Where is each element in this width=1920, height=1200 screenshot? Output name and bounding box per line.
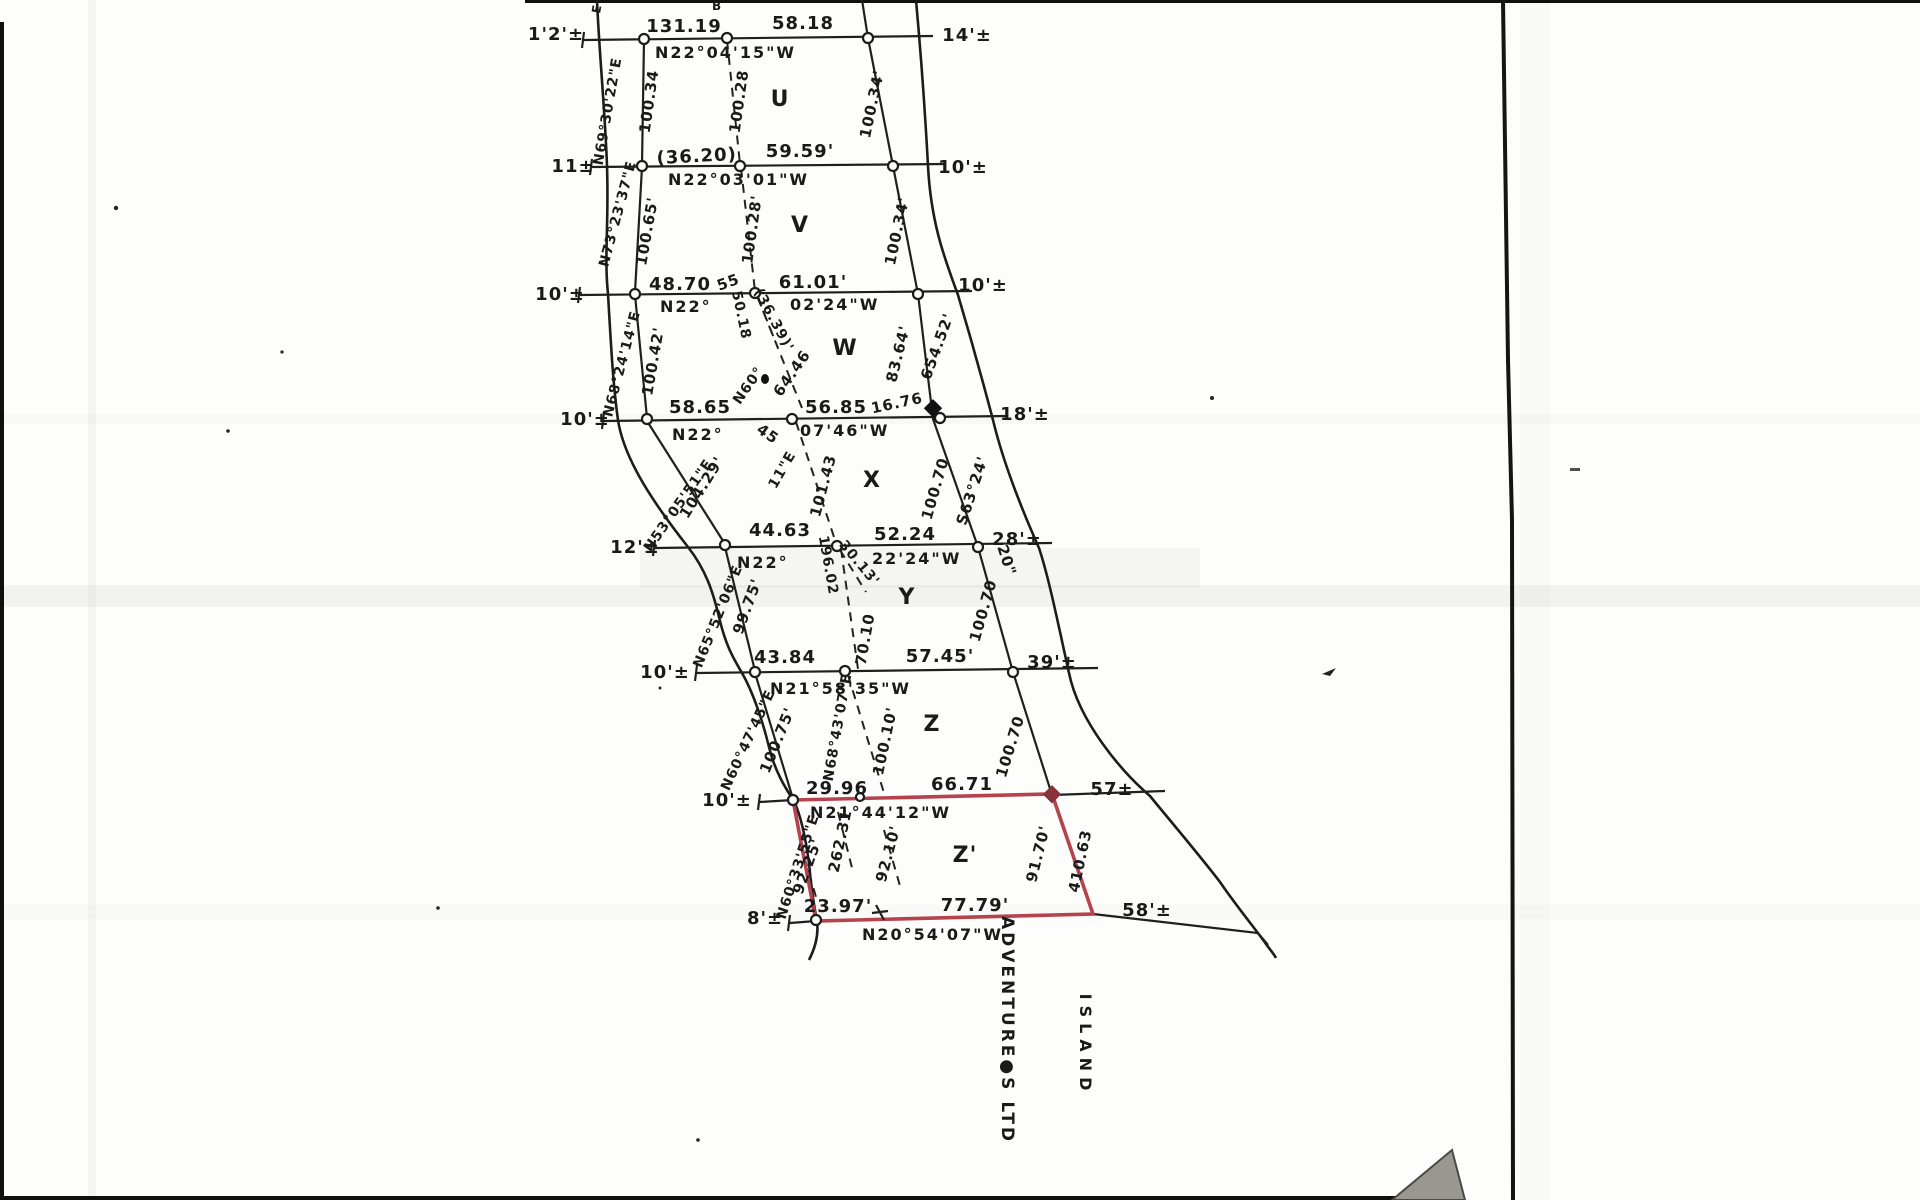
row-6-right-tick: 57± bbox=[1090, 779, 1133, 800]
lot-u-shore-bearing: N69°30'22"E bbox=[591, 56, 626, 166]
row-7-distance-2: 77.79' bbox=[941, 895, 1009, 916]
row-7-bearing: N20°54'07"W bbox=[862, 925, 1003, 944]
row-2-left-tick: 10'± bbox=[535, 284, 585, 305]
lot-u-traverse-length: 100.34' bbox=[856, 68, 888, 140]
row-3-bearing-sec: 07'46"W bbox=[800, 421, 889, 440]
lot-v-interior-length: 100.28' bbox=[738, 194, 765, 265]
row-3-distance-2: 56.85 bbox=[805, 397, 867, 418]
lot-z-prime-traverse-length: 91.70' bbox=[1022, 823, 1054, 884]
plat-drawing: E B 1'2'± 131.19 58.18 N22°04'15"W 14'± … bbox=[0, 0, 1920, 1200]
row-7-right-tick: 58'± bbox=[1122, 900, 1172, 921]
traverse-continuation-length: 410.63 bbox=[1065, 828, 1096, 894]
row-0-distance-2: 58.18 bbox=[772, 13, 834, 34]
scan-artifacts bbox=[0, 0, 1920, 1200]
lot-u-interior-length: 100.28 bbox=[726, 68, 753, 134]
corner-triangle-mark bbox=[1392, 1150, 1465, 1200]
lot-line-row-0 bbox=[584, 36, 933, 40]
lot-y-interior-length: 70.10 bbox=[852, 612, 879, 667]
row-3-distance-3: 16.76 bbox=[869, 389, 924, 418]
lot-v-side-length: 100.65' bbox=[632, 195, 662, 267]
lot-w-diagonal-bearing: N60° bbox=[730, 364, 767, 408]
row-6-bearing: N21°44'12"W bbox=[810, 803, 951, 822]
lot-w-side-length: 100.42' bbox=[638, 325, 668, 397]
lot-z-traverse-length: 100.70 bbox=[992, 713, 1028, 779]
row-2-bearing-deg: N22° bbox=[660, 297, 712, 316]
speck-arrow bbox=[1322, 668, 1336, 676]
row-1-distance-2: 59.59' bbox=[766, 141, 834, 162]
row-4-right-tick: 28'± bbox=[992, 529, 1042, 550]
row-2-bearing-sec: 02'24"W bbox=[790, 295, 879, 314]
row-6-left-tick: 10'± bbox=[702, 790, 752, 811]
lot-z-prime-dim-3: 92.10' bbox=[872, 823, 904, 884]
row-2-distance-2: 61.01' bbox=[779, 272, 847, 293]
lot-x-label: X bbox=[863, 468, 881, 493]
lot-w-label: W bbox=[832, 336, 857, 361]
row-5-distance-2: 57.45' bbox=[906, 646, 974, 667]
row-1-left-tick: 11± bbox=[551, 156, 594, 177]
row-6-distance-2: 66.71 bbox=[931, 774, 993, 795]
row-3-bearing-min: 45 bbox=[753, 420, 782, 448]
lot-z-prime-label: Z' bbox=[953, 843, 978, 868]
row-2-distance-1: 48.70 bbox=[649, 274, 711, 295]
row-5-right-tick: 39'± bbox=[1027, 652, 1077, 673]
row-4-distance-2: 52.24 bbox=[874, 524, 936, 545]
row-3-distance-1: 58.65 bbox=[669, 397, 731, 418]
row-4-bearing-sec: 22'24"W bbox=[872, 549, 961, 568]
lot-w-shore-bearing: N68°24'14"E bbox=[600, 309, 644, 419]
red-corner-diamond bbox=[1043, 785, 1061, 803]
row-5-distance-1: 43.84 bbox=[754, 647, 816, 668]
lot-x-diagonal-note: 11"E bbox=[766, 449, 800, 492]
lot-y-label: Y bbox=[898, 585, 916, 610]
row-3-bearing-deg: N22° bbox=[672, 425, 724, 444]
scanned-survey-plat: E B 1'2'± 131.19 58.18 N22°04'15"W 14'± … bbox=[0, 0, 1920, 1200]
row-1-right-tick: 10'± bbox=[938, 157, 988, 178]
row-0-distance-1: 131.19 bbox=[646, 16, 721, 37]
row-0-left-tick: 1'2'± bbox=[528, 24, 584, 45]
row-0-right-tick: 14'± bbox=[942, 25, 992, 46]
row-6-distance-1: 29.96 bbox=[806, 778, 868, 799]
row-3-right-tick: 18'± bbox=[1000, 404, 1050, 425]
shore-segment-length: 654.52' bbox=[917, 311, 958, 382]
lot-w-traverse-length: 83.64' bbox=[882, 323, 914, 384]
row-7-distance-1: 23.97' bbox=[804, 896, 872, 917]
row-1-bearing: N22°03'01"W bbox=[668, 170, 809, 189]
lot-x-interior-length: 101.43 bbox=[806, 453, 840, 519]
row-4-distance-1: 44.63 bbox=[749, 520, 811, 541]
lot-z-label: Z bbox=[924, 712, 941, 737]
lot-w-diagonal-length: 64.46 bbox=[769, 346, 814, 399]
lot-u-label: U bbox=[771, 87, 790, 112]
top-fragment-2: B bbox=[712, 0, 721, 13]
row-2-right-tick: 10'± bbox=[958, 275, 1008, 296]
lot-v-traverse-length: 100.34' bbox=[881, 195, 913, 267]
top-fragment-1: E bbox=[589, 4, 604, 15]
row-2-bearing-min: 50.18 bbox=[728, 289, 754, 341]
row-0-bearing: N22°04'15"W bbox=[655, 43, 796, 62]
lot-u-side-length: 100.34 bbox=[636, 68, 663, 134]
row-1-distance-1: (36.20) bbox=[656, 144, 737, 169]
lot-z-interior-length: 100.10' bbox=[869, 705, 901, 777]
company-name-vertical: ADVENTURE●S LTD bbox=[997, 916, 1017, 1144]
row-5-left-tick: 10'± bbox=[640, 662, 690, 683]
island-label-vertical: ISLAND bbox=[1076, 994, 1095, 1097]
lot-x-traverse-length: 100.70 bbox=[918, 455, 953, 521]
lot-v-label: V bbox=[791, 213, 809, 238]
